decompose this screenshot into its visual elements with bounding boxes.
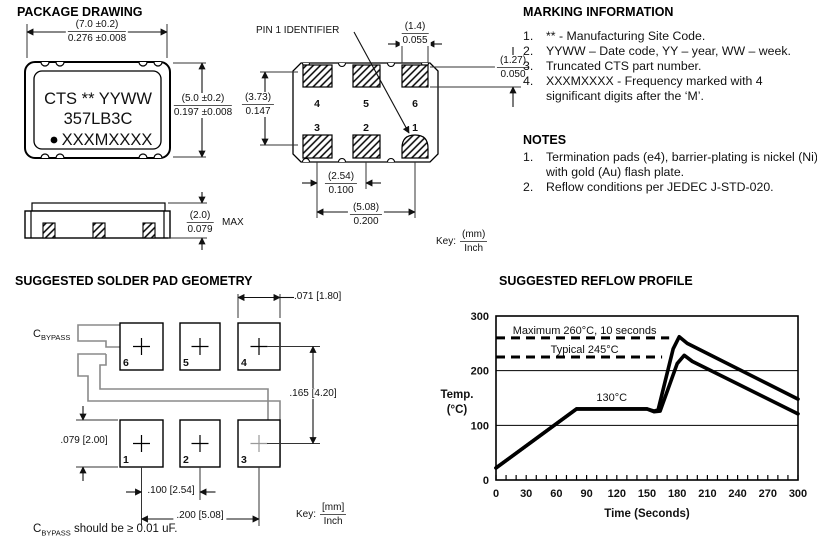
dim-pad-span: (5.08) 0.200 [348,202,384,227]
marking-item: 2. YYWW – Date code, YY – year, WW – wee… [523,44,814,59]
land-pad-number: 1 [412,122,418,134]
profile-curve-typical [496,355,798,468]
y-tick-label: 200 [471,366,489,378]
x-tick-label: 150 [638,488,656,500]
x-tick-label: 240 [728,488,746,500]
limit-label: Typical 245°C [551,344,619,356]
land-pad-number: 6 [412,98,418,110]
solder-pad-key: Key: [mm] Inch [296,502,346,527]
land-pad-number: 4 [314,98,320,110]
land-pad-number: 3 [314,122,320,134]
bypass-trace [78,325,120,347]
pin1-dot [51,137,58,144]
dim-solder-pad-width: .071 [1.80] [294,291,341,302]
marking-information-section: MARKING INFORMATION 1. ** - Manufacturin… [523,5,814,104]
dim-solder-pad-pitch: .100 [2.54] [144,485,197,496]
limit-label: Maximum 260°C, 10 seconds [513,325,657,337]
marking-item: 4. XXXMXXXX - Frequency marked with 4 si… [523,74,814,104]
chip-marking-line1: CTS ** YYWW [44,90,152,108]
y-tick-label: 0 [483,475,489,487]
dim-row-spacing: (3.73) 0.147 [240,92,276,117]
solder-pad-number: 3 [241,454,247,466]
x-tick-label: 60 [550,488,562,500]
x-tick-label: 210 [698,488,716,500]
marking-information-title: MARKING INFORMATION [523,5,814,19]
datasheet-page: PACKAGE DRAWING SUGGESTED SOLDER PAD GEO… [0,0,817,546]
annotation-label: 130°C [596,392,627,404]
note-item: 2. Reflow conditions per JEDEC J-STD-020… [523,180,817,195]
dim-solder-row-spacing: .165 [4.20] [286,388,339,399]
solder-pad-number: 6 [123,357,129,369]
dim-pad-width: (1.4) 0.055 [400,21,431,46]
solder-pad-title: SUGGESTED SOLDER PAD GEOMETRY [15,274,253,288]
note-item: 1. Termination pads (e4), barrier-platin… [523,150,817,180]
y-tick-label: 100 [471,420,489,432]
dim-solder-pad-span: .200 [5.08] [173,510,226,521]
land-pad-number: 2 [363,122,369,134]
y-axis-label-line1: Temp. [440,389,473,401]
notes-title: NOTES [523,133,817,147]
plot-border [496,316,798,480]
y-tick-label: 300 [471,311,489,323]
marking-item: 3. Truncated CTS part number. [523,59,814,74]
pin1-identifier-label: PIN 1 IDENTIFIER [256,25,339,36]
dim-pad-pitch: (2.54) 0.100 [323,171,359,196]
reflow-profile-title: SUGGESTED REFLOW PROFILE [499,274,693,288]
chip-marking-line3: XXXMXXXX [62,131,153,149]
solder-pad-number: 5 [183,357,189,369]
solder-pad-number: 2 [183,454,189,466]
x-tick-label: 90 [580,488,592,500]
cbypass-label: CBYPASS [33,328,70,342]
dim-solder-pad-height: .079 [2.00] [57,435,110,446]
reflow-profile-chart: Temp. (°C) Time (Seconds) 03060901201501… [425,290,817,542]
marking-item: 1. ** - Manufacturing Site Code. [523,29,814,44]
x-tick-label: 180 [668,488,686,500]
land-pattern-drawing: 4 5 6 3 2 1 [240,15,550,230]
land-pattern-key: Key: (mm) Inch [436,229,487,254]
land-pad-number: 5 [363,98,369,110]
package-drawing-title: PACKAGE DRAWING [17,5,142,19]
dim-thickness-qualifier: MAX [222,217,244,228]
chip-marking-line2: 357LB3C [64,110,133,128]
solder-pad-geometry-drawing: 6 5 4 1 2 3 [10,288,415,538]
solder-pad-number: 1 [123,454,129,466]
notes-section: NOTES 1. Termination pads (e4), barrier-… [523,133,817,195]
dim-package-height: (5.0 ±0.2) 0.197 ±0.008 [172,93,234,118]
y-axis-label-line2: (°C) [447,404,468,416]
x-tick-label: 120 [608,488,626,500]
solder-pad-number: 4 [241,357,247,369]
pin1-pad [402,135,428,158]
x-axis-label: Time (Seconds) [604,508,690,520]
x-tick-label: 270 [759,488,777,500]
dim-package-thickness: (2.0) 0.079 [185,210,216,235]
dim-package-width: (7.0 ±0.2) 0.276 ±0.008 [66,19,128,44]
package-side-view-drawing [10,192,255,264]
cbypass-note: CBYPASS should be ≥ 0.01 uF. [33,523,177,537]
x-tick-label: 0 [493,488,499,500]
x-tick-label: 30 [520,488,532,500]
x-tick-label: 300 [789,488,807,500]
